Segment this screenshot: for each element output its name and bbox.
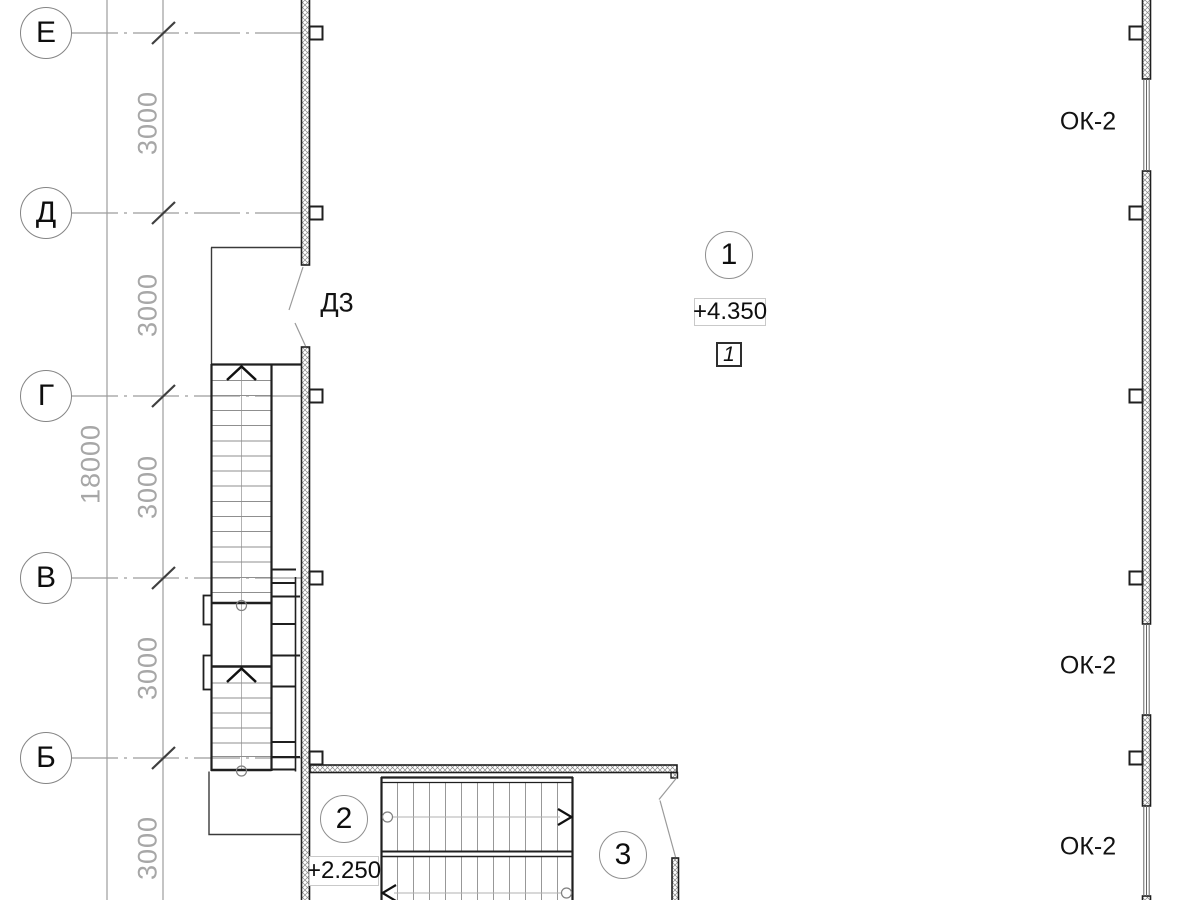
bay-dimension: 3000 bbox=[133, 636, 164, 700]
axis-lines bbox=[72, 33, 308, 758]
window-label-ok2: ОК-2 bbox=[1060, 833, 1116, 862]
elevation-value: +4.350 bbox=[693, 298, 767, 326]
axis-label: Д bbox=[36, 198, 56, 228]
axis-label: Е bbox=[36, 18, 56, 48]
node-mark-1: 1 bbox=[716, 342, 742, 367]
stair-side-strip bbox=[272, 570, 300, 772]
bay-dimension: 3000 bbox=[133, 816, 164, 880]
window-label-ok2: ОК-2 bbox=[1060, 652, 1116, 681]
node-mark-value: 1 bbox=[723, 343, 735, 367]
bay-dimension: 3000 bbox=[133, 273, 164, 337]
stair-main bbox=[204, 364, 303, 776]
room-bubble-3: 3 bbox=[599, 831, 647, 879]
room-number: 1 bbox=[721, 240, 738, 270]
axis-label: Г bbox=[38, 381, 54, 411]
window-glazing-lines bbox=[1144, 79, 1149, 896]
axis-bubble-v: В bbox=[20, 552, 72, 604]
room-bubble-1: 1 bbox=[705, 231, 753, 279]
door-d3-swing bbox=[289, 267, 306, 346]
door-room3-swing bbox=[659, 778, 677, 857]
floor-plan-canvas: Е Д Г В Б 3000 3000 3000 3000 3000 18000… bbox=[0, 0, 1200, 900]
axis-bubble-e: Е bbox=[20, 7, 72, 59]
window-label-ok2: ОК-2 bbox=[1060, 108, 1116, 137]
plan-geometry-layer bbox=[0, 0, 1200, 900]
axis-bubble-g: Г bbox=[20, 370, 72, 422]
right-wall bbox=[1143, 0, 1151, 900]
room-bubble-2: 2 bbox=[320, 795, 368, 843]
room-number: 3 bbox=[615, 840, 632, 870]
room-number: 2 bbox=[336, 804, 353, 834]
bay-dimension: 3000 bbox=[133, 455, 164, 519]
door-label-d3: Д3 bbox=[320, 288, 353, 319]
axis-bubble-d: Д bbox=[20, 187, 72, 239]
left-wall bbox=[302, 0, 310, 900]
stair-up-arrows bbox=[227, 367, 256, 683]
wall-tie-squares bbox=[310, 27, 1143, 765]
bay-dimension: 3000 bbox=[133, 91, 164, 155]
axis-bubble-b: Б bbox=[20, 732, 72, 784]
elevation-mark-lower: +2.250 bbox=[309, 856, 379, 886]
elevation-value: +2.250 bbox=[307, 857, 381, 885]
overall-dimension: 18000 bbox=[76, 424, 107, 504]
stairwell-outline bbox=[209, 248, 302, 835]
stair-lower bbox=[381, 777, 573, 900]
axis-label: В bbox=[36, 563, 56, 593]
elevation-mark-upper: +4.350 bbox=[694, 298, 766, 326]
axis-label: Б bbox=[36, 743, 56, 773]
